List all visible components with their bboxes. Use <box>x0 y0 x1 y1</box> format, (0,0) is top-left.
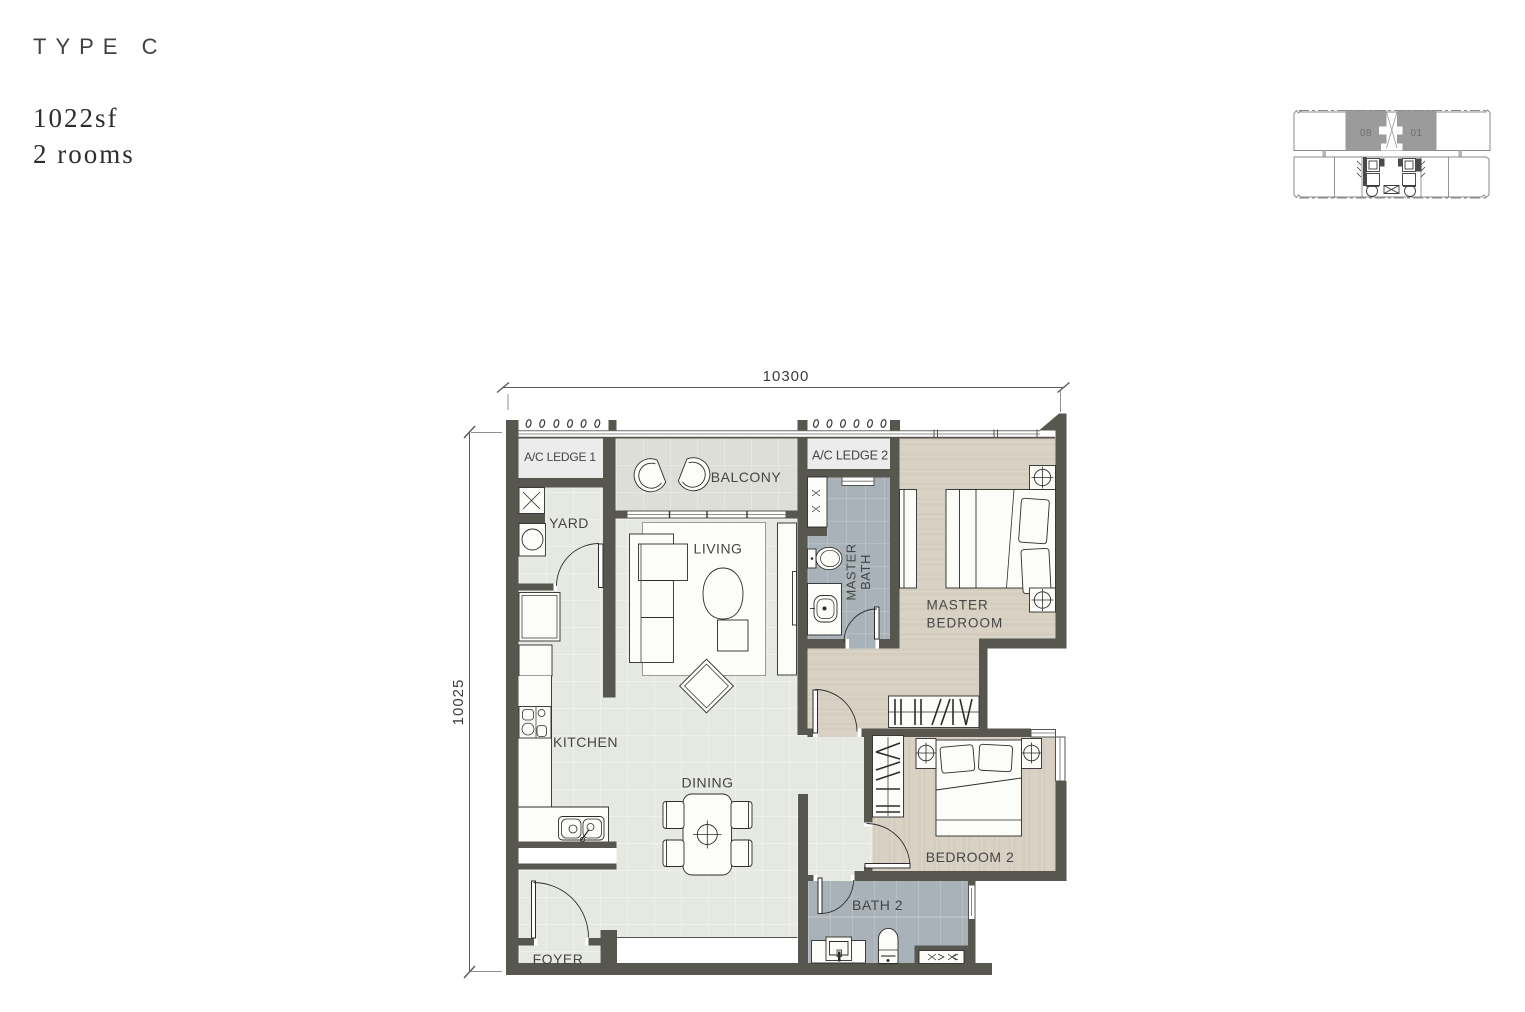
svg-text:MASTER: MASTER <box>844 543 859 600</box>
svg-text:YARD: YARD <box>549 515 589 531</box>
svg-text:01: 01 <box>1410 128 1422 139</box>
svg-text:TYPE C: TYPE C <box>33 34 166 59</box>
svg-text:10300: 10300 <box>763 368 810 385</box>
svg-text:DINING: DINING <box>682 775 734 791</box>
svg-text:KITCHEN: KITCHEN <box>553 734 618 750</box>
svg-text:BALCONY: BALCONY <box>711 469 782 485</box>
svg-text:A/C LEDGE 2: A/C LEDGE 2 <box>812 449 888 463</box>
svg-text:BEDROOM: BEDROOM <box>927 616 1004 631</box>
svg-text:LIVING: LIVING <box>694 541 743 557</box>
svg-text:FOYER: FOYER <box>533 951 584 967</box>
svg-text:10025: 10025 <box>450 679 467 726</box>
svg-text:BEDROOM 2: BEDROOM 2 <box>926 849 1015 865</box>
svg-text:MASTER: MASTER <box>927 598 989 613</box>
svg-text:A/C LEDGE 1: A/C LEDGE 1 <box>524 450 596 464</box>
svg-text:BATH: BATH <box>858 554 873 590</box>
svg-text:08: 08 <box>1360 128 1372 139</box>
svg-text:BATH 2: BATH 2 <box>852 897 903 913</box>
svg-text:1022sf: 1022sf <box>33 103 119 133</box>
svg-text:2 rooms: 2 rooms <box>33 139 135 169</box>
